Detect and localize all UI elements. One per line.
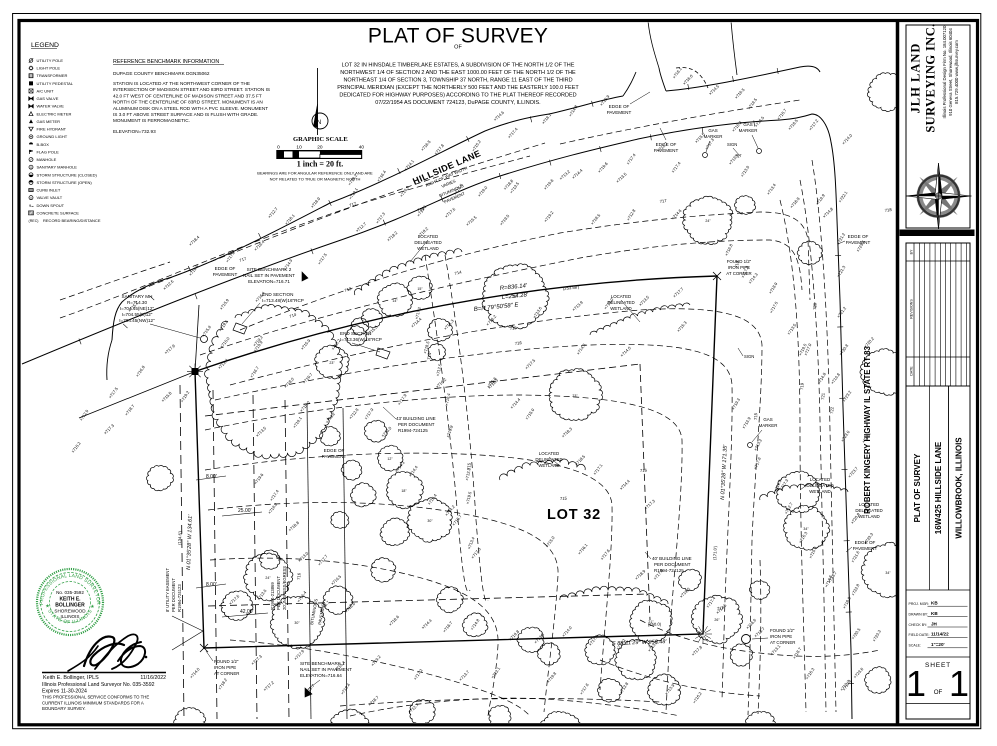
svg-text:OF: OF — [934, 689, 943, 696]
svg-text:LOCATED: LOCATED — [539, 451, 559, 456]
svg-text:1 inch = 20 ft.: 1 inch = 20 ft. — [297, 160, 344, 169]
svg-text:NORTH OF THE CENTERLINE OF 83R: NORTH OF THE CENTERLINE OF 83RD STREET. … — [113, 100, 263, 105]
svg-text:24": 24" — [265, 576, 271, 580]
svg-text:FOUND 1/2": FOUND 1/2" — [770, 628, 795, 633]
svg-text:A/C UNIT: A/C UNIT — [37, 88, 55, 93]
svg-text:STORM STRUCTURE (OPEN): STORM STRUCTURE (OPEN) — [37, 180, 93, 185]
svg-text:WETLAND: WETLAND — [809, 489, 830, 494]
svg-text:910 Geneva Street, Shorewood,: 910 Geneva Street, Shorewood, Illinois 6… — [948, 28, 953, 116]
svg-text:20: 20 — [317, 145, 323, 151]
svg-text:UTILITY PEDESTAL: UTILITY PEDESTAL — [37, 81, 74, 86]
svg-text:DEDICATED FOR HIGHWAY PURPOSES: DEDICATED FOR HIGHWAY PURPOSES) ACCORDIN… — [339, 92, 576, 98]
svg-text:24": 24" — [705, 219, 711, 223]
svg-text:NORTHEAST 1/4 OF SECTION 3, TO: NORTHEAST 1/4 OF SECTION 3, TOWNSHIP 37 … — [343, 77, 572, 83]
svg-text:STORM STRUCTURE (CLOSED): STORM STRUCTURE (CLOSED) — [37, 172, 98, 177]
svg-text:LOT 32 IN HINSDALE TIMBERLAKE: LOT 32 IN HINSDALE TIMBERLAKE ESTATES, A… — [342, 63, 575, 69]
svg-text:ELEVATION=732.93: ELEVATION=732.93 — [113, 129, 156, 134]
svg-text:0: 0 — [277, 145, 280, 151]
svg-text:1: 1 — [949, 663, 969, 704]
svg-text:23": 23" — [512, 295, 518, 299]
svg-text:MONUMENT IS FERROMAGNETIC.: MONUMENT IS FERROMAGNETIC. — [113, 118, 190, 123]
svg-text:I=704.45(NE)12": I=704.45(NE)12" — [120, 306, 155, 311]
svg-text:Keith E. Bollinger, IPLS: Keith E. Bollinger, IPLS — [43, 675, 99, 681]
svg-text:SANITARY MANHOLE: SANITARY MANHOLE — [37, 165, 78, 170]
svg-text:8.00': 8.00' — [206, 582, 217, 588]
svg-text:V: V — [30, 196, 32, 200]
svg-text:I=713.36(W)16"RCP: I=713.36(W)16"RCP — [340, 337, 382, 342]
svg-text:LOT 32: LOT 32 — [547, 507, 601, 523]
svg-text:STATION IS LOCATED AT THE NORT: STATION IS LOCATED AT THE NORTHWEST CORN… — [113, 81, 250, 86]
svg-text:ILLINOIS: ILLINOIS — [61, 614, 80, 619]
svg-text:Illinois Professional Design F: Illinois Professional Design Firm No. 18… — [942, 25, 947, 119]
svg-text:FLAG POLE: FLAG POLE — [37, 149, 60, 154]
svg-text:WETLAND: WETLAND — [417, 246, 438, 251]
svg-text:UTILITY POLE: UTILITY POLE — [37, 58, 64, 63]
svg-text:715: 715 — [753, 412, 758, 420]
svg-text:BOUNDARY SURVEY.: BOUNDARY SURVEY. — [42, 706, 86, 711]
svg-text:PROJ. MGR:: PROJ. MGR: — [909, 602, 929, 606]
svg-text:S: S — [30, 166, 32, 170]
svg-text:R1994-724123: R1994-724123 — [177, 584, 182, 612]
svg-text:30": 30" — [294, 621, 300, 625]
svg-text:LEGEND: LEGEND — [31, 42, 59, 49]
svg-text:SIGN: SIGN — [727, 142, 737, 147]
svg-text:IRON PIPE: IRON PIPE — [214, 665, 236, 670]
svg-text:PLAT OF SURVEY: PLAT OF SURVEY — [913, 453, 922, 522]
svg-text:23": 23" — [572, 394, 578, 398]
svg-text:PER DOCUMENT: PER DOCUMENT — [276, 576, 281, 610]
svg-text:716: 716 — [296, 572, 302, 580]
svg-text:LIGHT POLE: LIGHT POLE — [37, 66, 61, 71]
svg-text:34": 34" — [803, 527, 809, 531]
svg-text:11/16/2022: 11/16/2022 — [140, 675, 166, 681]
svg-text:GAS: GAS — [743, 122, 752, 127]
svg-text:NAIL SET IN PAVEMENT: NAIL SET IN PAVEMENT — [243, 273, 295, 278]
svg-text:JH: JH — [931, 621, 938, 626]
svg-text:DELINEATED: DELINEATED — [414, 240, 441, 245]
svg-text:EDGE OF: EDGE OF — [324, 448, 345, 453]
svg-text:LOCATED: LOCATED — [611, 294, 631, 299]
svg-text:DOWN SPOUT: DOWN SPOUT — [37, 203, 65, 208]
svg-text:14": 14" — [392, 299, 398, 303]
svg-text:AT CORNER: AT CORNER — [214, 671, 239, 676]
svg-text:16W425 HILLSIDE LANE: 16W425 HILLSIDE LANE — [934, 441, 943, 534]
svg-text:CONCRETE SURFACE: CONCRETE SURFACE — [37, 210, 80, 215]
svg-text:CURB INLET: CURB INLET — [37, 188, 61, 193]
svg-text:PAVEMENT: PAVEMENT — [322, 454, 347, 459]
svg-text:SHEET: SHEET — [925, 662, 951, 669]
svg-text:1: 1 — [906, 663, 926, 704]
svg-text:GAS: GAS — [708, 128, 717, 133]
svg-text:GAS METER: GAS METER — [37, 119, 61, 124]
svg-text:KB: KB — [931, 611, 938, 616]
svg-text:15": 15" — [417, 287, 423, 291]
svg-text:8.00': 8.00' — [206, 474, 217, 480]
svg-text:OF: OF — [454, 45, 462, 51]
svg-text:MARKER: MARKER — [704, 134, 723, 139]
svg-text:8' UTILITY EASEMENT: 8' UTILITY EASEMENT — [165, 568, 170, 612]
svg-text:Illinois Professional Land Sur: Illinois Professional Land Surveyor No. … — [42, 682, 155, 688]
svg-text:FOUND 1/2": FOUND 1/2" — [214, 659, 239, 664]
svg-text:GROUND LIGHT: GROUND LIGHT — [37, 134, 68, 139]
svg-text:12": 12" — [387, 457, 393, 461]
svg-text:N: N — [317, 119, 321, 126]
svg-text:30": 30" — [427, 519, 433, 523]
svg-text:SHOREWOOD: SHOREWOOD — [54, 609, 86, 614]
svg-text:NOT RELATED TO TRUE OR MAG: NOT RELATED TO TRUE OR MAGNETIC NORTH — [270, 177, 361, 182]
svg-text:ELECTRIC METER: ELECTRIC METER — [37, 111, 72, 116]
svg-text:PER DOCUMENT: PER DOCUMENT — [398, 422, 435, 427]
svg-text:WETLAND: WETLAND — [538, 463, 559, 468]
svg-text:CHECK BY:: CHECK BY: — [909, 623, 928, 627]
svg-text:722: 722 — [829, 406, 835, 414]
svg-text:SURVEYING INC.: SURVEYING INC. — [924, 23, 938, 132]
svg-text:BY: BY — [910, 249, 914, 254]
svg-text:DATE: DATE — [910, 366, 914, 376]
svg-text:10: 10 — [296, 145, 302, 151]
svg-text:MARKER: MARKER — [739, 128, 758, 133]
svg-text:11/14/22: 11/14/22 — [931, 632, 949, 637]
svg-text:R1994-213869: R1994-213869 — [270, 582, 275, 610]
svg-text:18": 18" — [401, 489, 407, 493]
svg-text:NORTHWEST 1/4 OF SECTION 2 AND: NORTHWEST 1/4 OF SECTION 2 AND THE EAST … — [340, 70, 576, 76]
svg-text:PRINCIPAL MERIDIAN (EXCEPT THE: PRINCIPAL MERIDIAN (EXCEPT THE NORTHERLY… — [337, 85, 579, 91]
svg-text:721: 721 — [820, 392, 826, 400]
svg-text:40: 40 — [359, 145, 365, 151]
svg-text:(REC): (REC) — [29, 219, 39, 223]
svg-text:21": 21" — [648, 620, 654, 624]
svg-text:719: 719 — [799, 382, 805, 390]
svg-text:DELINEATED: DELINEATED — [806, 483, 833, 488]
svg-text:34": 34" — [885, 571, 891, 575]
svg-text:MARKER: MARKER — [759, 423, 778, 428]
svg-text:42.0 FT WEST OF CENTERLINE OF: 42.0 FT WEST OF CENTERLINE OF MADISON ST… — [113, 93, 262, 98]
svg-text:WILLOWBROOK, ILLINOIS: WILLOWBROOK, ILLINOIS — [955, 437, 964, 539]
svg-text:20' INGRESS/EGRESS: 20' INGRESS/EGRESS — [282, 566, 287, 610]
svg-text:SIGN: SIGN — [744, 354, 754, 359]
svg-text:EDGE OF: EDGE OF — [848, 234, 869, 239]
svg-text:REVISIONS: REVISIONS — [910, 299, 914, 319]
svg-text:NAIL SET IN PAVEMENT: NAIL SET IN PAVEMENT — [300, 667, 352, 672]
svg-text:DUPAGE COUNTY BENCHMARK DGN350: DUPAGE COUNTY BENCHMARK DGN35062 — [113, 71, 210, 76]
svg-text:DELINEATED: DELINEATED — [535, 457, 562, 462]
svg-text:ELEVATION=716.71: ELEVATION=716.71 — [248, 279, 290, 284]
svg-text:MANHOLE: MANHOLE — [37, 157, 57, 162]
svg-text:23": 23" — [329, 361, 335, 365]
svg-text:I=704.45(NW)12": I=704.45(NW)12" — [119, 318, 155, 323]
svg-text:KB: KB — [931, 601, 938, 606]
svg-text:FIELD DATE:: FIELD DATE: — [909, 633, 930, 637]
svg-text:815.729.4000 www.jlhsurvey.c: 815.729.4000 www.jlhsurvey.com — [954, 40, 959, 104]
svg-text:FIRE HYDRANT: FIRE HYDRANT — [37, 127, 67, 132]
svg-text:VALVE VAULT: VALVE VAULT — [37, 195, 63, 200]
svg-text:INTERSECTION OF MADISON STREET: INTERSECTION OF MADISON STREET AND 83RD … — [113, 87, 270, 92]
svg-text:AT CORNER: AT CORNER — [726, 271, 751, 276]
svg-text:THIS PROFESSIONAL SERVICE C: THIS PROFESSIONAL SERVICE CONFORMS TO TH… — [42, 695, 149, 700]
svg-text:TRANSFORMER: TRANSFORMER — [37, 73, 68, 78]
svg-text:RECORD BEARING/DISTANCE: RECORD BEARING/DISTANCE — [43, 218, 101, 223]
svg-text:720: 720 — [812, 302, 818, 310]
svg-text:No. 035-3592: No. 035-3592 — [56, 590, 84, 595]
svg-text:REFERENCE BENCHMARK INFORMATIO: REFERENCE BENCHMARK INFORMATION — [113, 59, 219, 65]
svg-text:715: 715 — [560, 496, 568, 501]
svg-text:EDGE OF: EDGE OF — [609, 104, 630, 109]
svg-text:07/22/1954 AS DOCUMENT 724123,: 07/22/1954 AS DOCUMENT 724123, DuPAGE CO… — [375, 100, 541, 106]
svg-text:JLH LAND: JLH LAND — [909, 43, 923, 114]
svg-text:WATER VALVE: WATER VALVE — [37, 104, 65, 109]
svg-text:1"=20': 1"=20' — [931, 642, 945, 647]
svg-text:FOUND 1/2": FOUND 1/2" — [727, 259, 752, 264]
svg-text:EDGE OF: EDGE OF — [215, 266, 236, 271]
svg-text:716: 716 — [640, 468, 648, 473]
svg-text:GRAPHIC SCALE: GRAPHIC SCALE — [293, 136, 348, 143]
svg-text:DRAWN BY:: DRAWN BY: — [909, 612, 929, 616]
svg-text:40' BUILDING LINE: 40' BUILDING LINE — [652, 556, 692, 561]
svg-text:PAVEMENT: PAVEMENT — [213, 272, 238, 277]
svg-text:PAVEMENT: PAVEMENT — [607, 110, 632, 115]
svg-text:CURRENT ILLINOIS MINIMUM ST: CURRENT ILLINOIS MINIMUM STANDARDS FOR A — [42, 701, 144, 706]
svg-text:IS 3.0 FT ABOVE STREET SURFACE: IS 3.0 FT ABOVE STREET SURFACE AND IS FL… — [113, 112, 258, 117]
svg-text:ALUMINUM DISK ON A STEEL ROD W: ALUMINUM DISK ON A STEEL ROD WITH A PVC … — [113, 106, 268, 111]
svg-text:AT CORNER: AT CORNER — [770, 640, 795, 645]
svg-text:ELEVATION=716.64: ELEVATION=716.64 — [300, 673, 342, 678]
svg-text:43' BUILDING LINE: 43' BUILDING LINE — [396, 416, 436, 421]
svg-text:(171.0'): (171.0') — [712, 545, 718, 560]
svg-text:GAS VALVE: GAS VALVE — [37, 96, 59, 101]
svg-text:ROBERT KINGERY HIGHWAY IL STAT: ROBERT KINGERY HIGHWAY IL STATE RT 83 — [863, 346, 872, 514]
svg-text:GAS: GAS — [763, 417, 772, 422]
svg-text:B-BOX: B-BOX — [37, 142, 50, 147]
svg-text:PER DOCUMENT: PER DOCUMENT — [654, 562, 691, 567]
svg-text:R1994-724125: R1994-724125 — [398, 428, 428, 433]
svg-text:END SECTION: END SECTION — [262, 292, 293, 297]
svg-text:IRON PIPE: IRON PIPE — [770, 634, 792, 639]
svg-text:PER DOCUMENT: PER DOCUMENT — [171, 578, 176, 612]
svg-text:716: 716 — [514, 340, 522, 346]
svg-text:SANITARY MH: SANITARY MH — [122, 294, 153, 299]
svg-text:I=704.55(E)12": I=704.55(E)12" — [122, 312, 153, 317]
svg-text:26": 26" — [714, 618, 720, 622]
svg-text:I=713.48(W)16"RCP: I=713.48(W)16"RCP — [262, 298, 304, 303]
svg-text:SCALE:: SCALE: — [909, 644, 921, 648]
